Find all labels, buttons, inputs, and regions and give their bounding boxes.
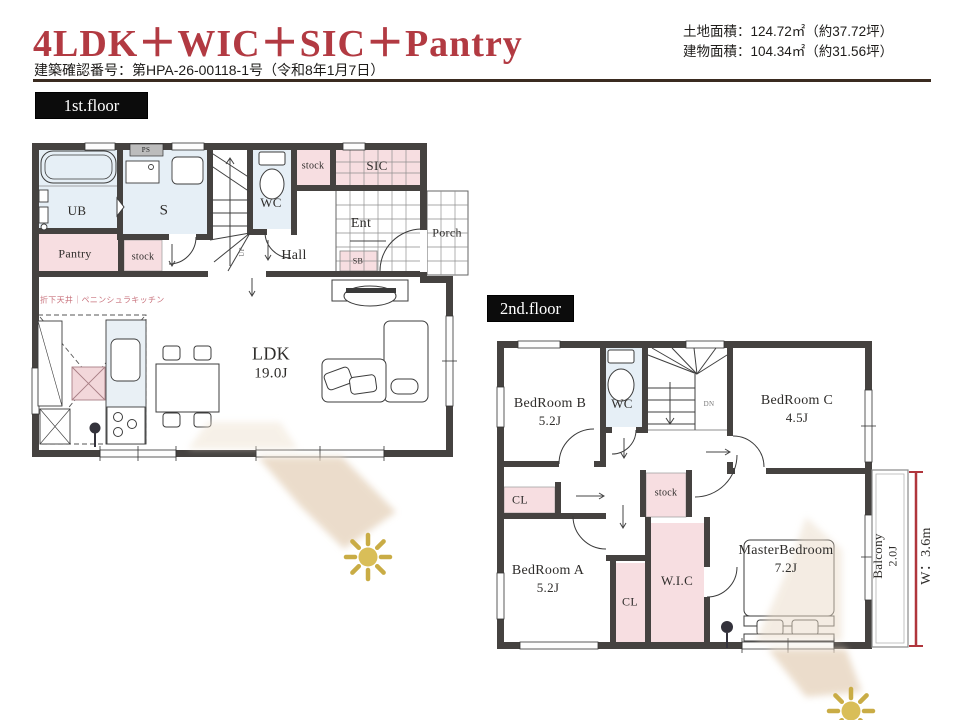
sun-icon [829, 689, 873, 720]
label-entrance: Ent [351, 216, 371, 232]
label-master-bedroom-size: 7.2J [775, 560, 798, 576]
label-stock-2f: stock [655, 488, 678, 499]
building-permit-number: 建築確認番号：第HPA-26-00118-1号（令和8年1月7日） [34, 60, 384, 80]
staircase-2f [648, 348, 727, 430]
label-stock-mid: stock [132, 252, 155, 263]
label-master-bedroom: MasterBedroom [739, 543, 834, 559]
label-dn: DN [704, 400, 715, 408]
label-closet-b: CL [512, 493, 528, 508]
label-ps: PS [142, 146, 150, 154]
sun-icon [346, 535, 390, 579]
label-bedroom-a-size: 5.2J [537, 580, 560, 596]
label-wic: W.I.C [661, 573, 693, 589]
area-info: 土地面積：124.72㎡（約37.72坪） 建物面積：104.34㎡（約31.5… [683, 22, 893, 62]
label-wc-2f: WC [611, 396, 633, 412]
land-area: 土地面積：124.72㎡（約37.72坪） [683, 22, 893, 42]
building-area: 建物面積：104.34㎡（約31.56坪） [683, 42, 893, 62]
label-closet-a: CL [622, 595, 638, 610]
dining-table [156, 346, 219, 427]
label-bedroom-c-size: 4.5J [786, 410, 809, 426]
floor1-tag: 1st.floor [35, 92, 148, 119]
label-wc-1f: WC [260, 195, 282, 211]
floor2-plan [497, 341, 923, 653]
floorplan-page: 4LDK＋WIC＋SIC＋Pantry 建築確認番号：第HPA-26-00118… [0, 0, 960, 720]
floor2-tag: 2nd.floor [487, 295, 574, 322]
label-sic: SIC [366, 158, 387, 174]
label-ub: UB [68, 203, 87, 219]
label-bedroom-b-size: 5.2J [539, 413, 562, 429]
page-title: 4LDK＋WIC＋SIC＋Pantry [33, 12, 523, 67]
label-stock-top: stock [302, 161, 325, 172]
label-porch: Porch [432, 226, 462, 241]
label-ldk-size: 19.0J [254, 366, 288, 383]
label-pantry: Pantry [58, 247, 91, 262]
label-balcony: Balcony [870, 533, 886, 578]
label-bedroom-a: BedRoom A [512, 563, 584, 579]
toilet-1f [259, 152, 285, 199]
label-kitchen-note: 折下天井｜ペニンシュラキッチン [40, 295, 165, 306]
label-up: UP [238, 247, 246, 257]
label-shoe-box: SB [353, 257, 363, 266]
entry-opening [420, 230, 427, 272]
tv-board [332, 280, 408, 306]
label-balcony-size: 2.0J [886, 546, 901, 567]
label-ldk: LDK [252, 344, 290, 365]
label-balcony-width: W：3.6m [915, 527, 935, 584]
faucet-symbol-1f [90, 423, 101, 448]
label-bedroom-b: BedRoom B [514, 396, 586, 412]
label-washroom: S [160, 203, 169, 220]
label-bedroom-c: BedRoom C [761, 393, 833, 409]
toilet-2f [608, 350, 634, 401]
label-hall: Hall [281, 248, 306, 264]
kitchen-counter [106, 320, 146, 444]
sofa [322, 321, 428, 402]
